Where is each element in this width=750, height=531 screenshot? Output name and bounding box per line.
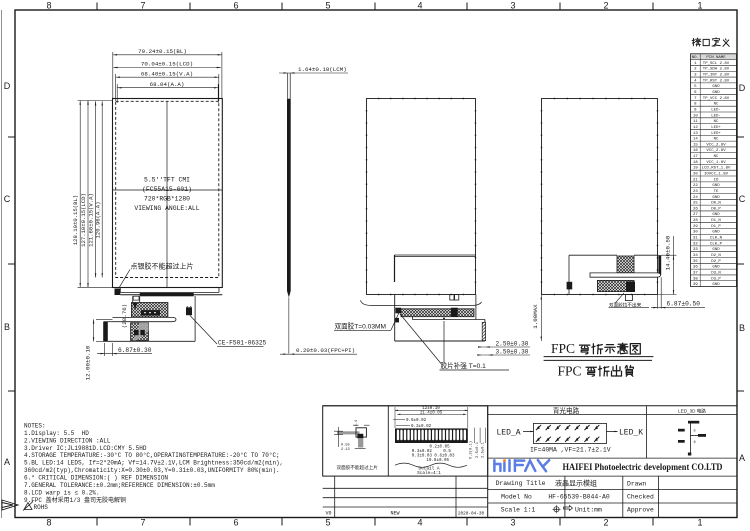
svg-text:68.04(A.A): 68.04(A.A) xyxy=(150,81,185,88)
svg-text:24: 24 xyxy=(693,196,698,200)
svg-text:LED-: LED- xyxy=(711,108,721,112)
svg-text:GND: GND xyxy=(712,231,720,235)
svg-text:3.Driver IC:JL19881D.LCD:CMY 5: 3.Driver IC:JL19881D.LCD:CMY 5.5HD xyxy=(24,445,147,452)
svg-text:127.10±0.15(LCD): 127.10±0.15(LCD) xyxy=(80,193,87,247)
svg-text:GND: GND xyxy=(712,85,720,89)
svg-text:双面胶拉不出来: 双面胶拉不出来 xyxy=(609,301,642,308)
svg-text:D2_P: D2_P xyxy=(711,260,721,264)
svg-text:13: 13 xyxy=(693,132,698,136)
svg-text:CLK_P: CLK_P xyxy=(710,242,723,246)
svg-text:D0_P: D0_P xyxy=(711,207,721,211)
svg-text:V0: V0 xyxy=(325,511,331,517)
svg-text:液晶显示模组: 液晶显示模组 xyxy=(555,478,597,487)
svg-text:A: A xyxy=(4,457,10,467)
svg-text:2.5±0.1: 2.5±0.1 xyxy=(482,441,486,458)
svg-text:2.5±0.1: 2.5±0.1 xyxy=(476,441,480,458)
svg-text:5.BL LED:14 LEDS, If=2*20mA; V: 5.BL LED:14 LEDS, If=2*20mA; Vf=14.7V±2.… xyxy=(24,460,283,467)
svg-text:D0_N: D0_N xyxy=(711,202,721,206)
svg-text:Drawing Title: Drawing Title xyxy=(496,480,546,487)
svg-text:Model No: Model No xyxy=(501,494,532,501)
svg-text:D3_N: D3_N xyxy=(711,271,721,275)
svg-text:15: 15 xyxy=(693,143,698,147)
svg-text:16: 16 xyxy=(693,149,698,153)
svg-text:ROHS: ROHS xyxy=(34,504,49,511)
svg-text:33: 33 xyxy=(693,248,698,252)
svg-text:11: 11 xyxy=(693,120,698,124)
svg-text:25: 25 xyxy=(693,202,698,206)
svg-text:2: 2 xyxy=(603,518,608,527)
svg-text:4: 4 xyxy=(417,1,422,11)
svg-text:38: 38 xyxy=(693,277,698,281)
svg-text:23: 23 xyxy=(693,190,698,194)
svg-text:CLK_N: CLK_N xyxy=(710,237,723,241)
svg-text:0.3±0.02: 0.3±0.02 xyxy=(412,450,433,454)
svg-text:0.3±0.02: 0.3±0.02 xyxy=(411,425,432,429)
svg-text:HAIFEI Photoelectric developme: HAIFEI Photoelectric development CO.LTD xyxy=(563,462,723,472)
svg-text:TP_SDA 2.8V: TP_SDA 2.8V xyxy=(703,68,730,72)
svg-text:NEW: NEW xyxy=(390,511,399,517)
svg-text:120.96(A.A): 120.96(A.A) xyxy=(94,202,101,239)
svg-text:D2_N: D2_N xyxy=(711,254,721,258)
svg-text:GND: GND xyxy=(712,266,720,270)
svg-text:D1_N: D1_N xyxy=(711,219,721,223)
svg-text:2.VIEWING DIRECTION :ALL: 2.VIEWING DIRECTION :ALL xyxy=(24,437,111,444)
svg-text:LED_K: LED_K xyxy=(619,429,643,438)
svg-text:8.LCD warp is ≤ 0.2%.: 8.LCD warp is ≤ 0.2%. xyxy=(24,489,100,496)
svg-text:LED+: LED+ xyxy=(711,126,721,130)
svg-text:20: 20 xyxy=(693,173,698,177)
svg-text:0.6±0.02: 0.6±0.02 xyxy=(406,419,427,423)
svg-text:VIEWING ANGLE:ALL: VIEWING ANGLE:ALL xyxy=(134,205,199,212)
svg-text:背光电路: 背光电路 xyxy=(553,406,580,415)
svg-text:34: 34 xyxy=(693,254,698,258)
svg-text:LED+: LED+ xyxy=(711,132,721,136)
svg-text:5: 5 xyxy=(325,518,330,527)
svg-text:2020-04-30: 2020-04-30 xyxy=(458,511,485,516)
svg-text:6.87±0.30: 6.87±0.30 xyxy=(118,347,152,354)
svg-text:8: 8 xyxy=(46,518,51,527)
svg-text:GND: GND xyxy=(712,184,720,188)
svg-text:17: 17 xyxy=(693,155,698,159)
svg-text:3: 3 xyxy=(510,1,515,11)
svg-text:GND: GND xyxy=(712,213,720,217)
svg-text:0.20±0.03(FPC+PI): 0.20±0.03(FPC+PI) xyxy=(296,347,355,354)
svg-text:2.50±0.30: 2.50±0.30 xyxy=(496,340,529,347)
svg-text:B: B xyxy=(4,322,10,332)
svg-text:NC: NC xyxy=(714,103,719,107)
svg-text:12±0.10: 12±0.10 xyxy=(422,407,440,411)
svg-text:双面胶不能超过上片: 双面胶不能超过上片 xyxy=(337,464,379,471)
svg-text:IOVCC_1.8V: IOVCC_1.8V xyxy=(704,173,729,177)
svg-text:1: 1 xyxy=(697,518,702,527)
svg-text:4: 4 xyxy=(417,518,422,527)
svg-text:26: 26 xyxy=(693,207,698,211)
svg-text:19: 19 xyxy=(693,167,698,171)
svg-text:Scale 1:1: Scale 1:1 xyxy=(501,507,536,514)
svg-text:Scale=4:1: Scale=4:1 xyxy=(417,471,441,476)
svg-text:18: 18 xyxy=(693,161,698,165)
svg-text:ID: ID xyxy=(714,178,719,182)
svg-text:TP_INT 2.8V: TP_INT 2.8V xyxy=(703,74,730,78)
svg-text:VCC_1.8V: VCC_1.8V xyxy=(706,161,726,165)
svg-text:7.GENERAL TOLERANCE:±0.2mm;REF: 7.GENERAL TOLERANCE:±0.2mm;REFERENCE DIM… xyxy=(24,482,215,489)
svg-text:1: 1 xyxy=(697,1,702,11)
svg-text:VCC_2.8V: VCC_2.8V xyxy=(706,149,726,153)
svg-text:5.5''TFT CMI: 5.5''TFT CMI xyxy=(144,177,190,184)
svg-text:LED_3D 电路: LED_3D 电路 xyxy=(678,408,706,415)
svg-text:FPC: FPC xyxy=(558,363,582,378)
svg-text:2.13: 2.13 xyxy=(341,448,350,452)
svg-text:70.24±0.15(BL): 70.24±0.15(BL) xyxy=(138,48,187,55)
svg-text:128.10±0.15(BL): 128.10±0.15(BL) xyxy=(72,195,79,245)
svg-text:1.4: 1.4 xyxy=(355,420,359,426)
svg-text:27: 27 xyxy=(693,213,698,217)
svg-text:32: 32 xyxy=(693,242,698,246)
svg-text:B: B xyxy=(739,323,745,333)
svg-text:2: 2 xyxy=(603,1,608,11)
svg-text:FPC: FPC xyxy=(551,341,575,356)
svg-text:30: 30 xyxy=(693,231,698,235)
svg-text:D: D xyxy=(4,81,11,91)
svg-text:11.4±0.05: 11.4±0.05 xyxy=(420,411,443,415)
svg-text:NOTES:: NOTES: xyxy=(24,422,46,429)
svg-text:TP_SCL 2.8V: TP_SCL 2.8V xyxy=(703,62,730,66)
svg-text:LCD_RST_1.8V: LCD_RST_1.8V xyxy=(702,167,731,171)
svg-text:10.8±0.05: 10.8±0.05 xyxy=(426,459,449,463)
svg-text:29: 29 xyxy=(693,225,698,229)
svg-text:GND: GND xyxy=(712,283,720,287)
svg-text:37: 37 xyxy=(693,271,698,275)
svg-text:5: 5 xyxy=(694,430,696,434)
svg-text:31: 31 xyxy=(693,237,698,241)
svg-text:10: 10 xyxy=(693,114,698,118)
svg-text:Unit:mm: Unit:mm xyxy=(575,507,602,514)
svg-text:IF=40MA ,VF=21.7±2.1V: IF=40MA ,VF=21.7±2.1V xyxy=(530,447,611,454)
svg-text:Approve: Approve xyxy=(627,507,654,514)
svg-text:胶片补强 T=0.1: 胶片补强 T=0.1 xyxy=(441,361,487,370)
svg-text:双面胶T=0.03MM: 双面胶T=0.03MM xyxy=(335,322,386,331)
svg-text:(FC55A15-601): (FC55A15-601) xyxy=(142,186,192,193)
svg-text:C: C xyxy=(739,194,746,204)
svg-text:3: 3 xyxy=(510,518,515,527)
svg-text:C: C xyxy=(4,194,11,204)
svg-text:12: 12 xyxy=(693,126,698,130)
svg-text:1.64±0.10(LCM): 1.64±0.10(LCM) xyxy=(298,66,347,73)
svg-text:6: 6 xyxy=(233,1,238,11)
svg-text:3.50±0.30: 3.50±0.30 xyxy=(496,348,529,355)
svg-text:14: 14 xyxy=(693,138,698,142)
svg-text:GND: GND xyxy=(712,248,720,252)
svg-text:39: 39 xyxy=(693,283,698,287)
svg-text:21: 21 xyxy=(693,178,698,182)
svg-text:70.04±0.15(LCD): 70.04±0.15(LCD) xyxy=(141,61,193,68)
svg-text:(28.76): (28.76) xyxy=(121,304,128,328)
svg-text:GND: GND xyxy=(712,196,720,200)
svg-text:4.STORAGE TEMPERATURE:-30°C TO: 4.STORAGE TEMPERATURE:-30°C TO 80°C,OPER… xyxy=(24,452,280,459)
svg-text:12.00±0.10: 12.00±0.10 xyxy=(85,345,92,380)
svg-text:8: 8 xyxy=(46,1,51,11)
svg-text:9.FPC 盖材采用1/3 盎司无胶电解铜: 9.FPC 盖材采用1/3 盎司无胶电解铜 xyxy=(24,496,126,504)
svg-text:D3_P: D3_P xyxy=(711,277,721,281)
svg-text:28: 28 xyxy=(693,219,698,223)
svg-text:Checked: Checked xyxy=(627,494,654,501)
svg-text:NO.: NO. xyxy=(692,56,699,60)
svg-text:PIN NAME: PIN NAME xyxy=(706,56,726,60)
svg-text:35: 35 xyxy=(693,260,698,264)
svg-text:VCC_2.8V: VCC_2.8V xyxy=(706,143,726,147)
svg-text:TE: TE xyxy=(714,190,719,194)
svg-text:5: 5 xyxy=(325,1,330,11)
svg-text:14.40±0.50: 14.40±0.50 xyxy=(664,235,671,270)
svg-text:HF-65539-B044-A0: HF-65539-B044-A0 xyxy=(548,494,610,501)
svg-text:68.40±0.15(V.A): 68.40±0.15(V.A) xyxy=(141,70,193,77)
svg-text:GND: GND xyxy=(712,91,720,95)
svg-text:Drawn: Drawn xyxy=(627,480,646,487)
svg-text:0.5: 0.5 xyxy=(443,450,451,454)
svg-text:22: 22 xyxy=(693,184,698,188)
svg-text:NC: NC xyxy=(714,155,719,159)
svg-text:TP_RST 2.8V: TP_RST 2.8V xyxy=(703,79,730,83)
svg-text:NC: NC xyxy=(714,120,719,124)
svg-text:0.2±0.05: 0.2±0.05 xyxy=(430,446,451,450)
svg-text:点银胶不能超过上片: 点银胶不能超过上片 xyxy=(131,262,194,271)
svg-text:6.87±0.50: 6.87±0.50 xyxy=(667,301,701,308)
svg-text:LED-: LED- xyxy=(711,114,721,118)
svg-text:7: 7 xyxy=(140,518,145,527)
svg-text:7: 7 xyxy=(140,1,145,11)
svg-text:1.Display: 5.5 HD: 1.Display: 5.5 HD xyxy=(24,430,89,437)
svg-text:36: 36 xyxy=(693,266,698,270)
svg-text:360cd/m2(typ),Chromaticity:X=0: 360cd/m2(typ),Chromaticity:X=0.30±0.03,Y… xyxy=(24,467,280,474)
svg-text:A: A xyxy=(739,453,745,463)
svg-text:720*RGB*1280: 720*RGB*1280 xyxy=(144,196,190,203)
svg-text:6: 6 xyxy=(233,518,238,527)
svg-text:6.3(0.1): 6.3(0.1) xyxy=(469,441,474,459)
svg-text:TP_VCC 2.8V: TP_VCC 2.8V xyxy=(703,97,730,101)
svg-text:6: 6 xyxy=(694,441,696,445)
svg-text:0.3±0.03 0.6±0.03: 0.3±0.03 0.6±0.03 xyxy=(412,455,455,459)
svg-text:CE-F501-06325: CE-F501-06325 xyxy=(218,339,267,346)
svg-text:NC: NC xyxy=(714,138,719,142)
svg-text:6.* CRITICAL DIMENSION:( ) REF: 6.* CRITICAL DIMENSION:( ) REF DIMENSION xyxy=(24,475,168,482)
svg-text:1.00MAX: 1.00MAX xyxy=(532,304,539,329)
svg-text:D: D xyxy=(739,83,746,93)
svg-text:LED_A: LED_A xyxy=(497,429,521,438)
svg-text:D1_P: D1_P xyxy=(711,225,721,229)
